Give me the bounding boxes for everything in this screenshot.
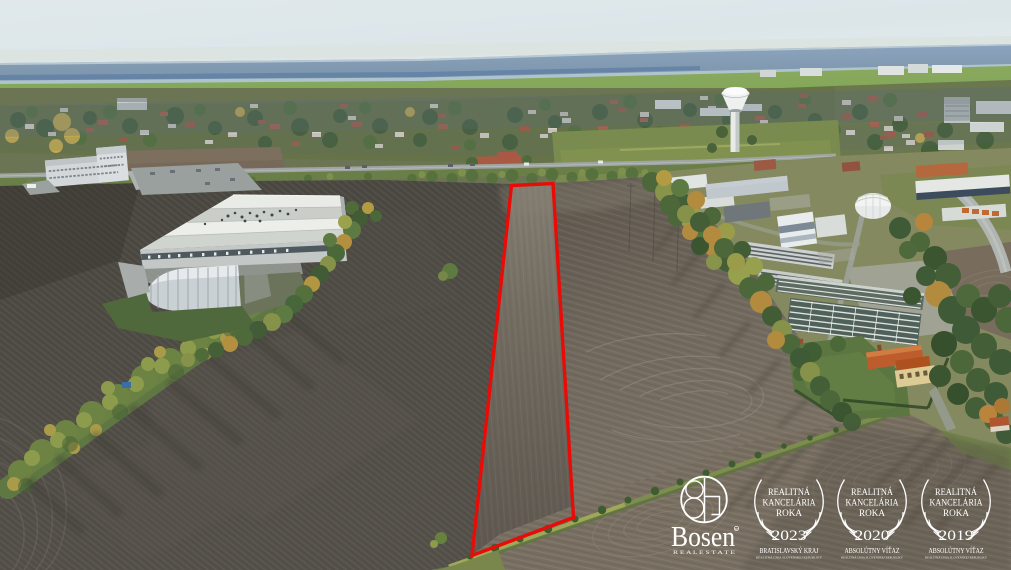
- svg-text:R: R: [735, 527, 738, 532]
- svg-text:R E A L E S T A T E: R E A L E S T A T E: [673, 550, 736, 556]
- svg-text:ABSOLÚTNY VÍŤAZ: ABSOLÚTNY VÍŤAZ: [845, 547, 900, 555]
- svg-text:REALITNÁ ÚNIA SLOVENSKEJ REPUB: REALITNÁ ÚNIA SLOVENSKEJ REPUBLIKY: [756, 555, 823, 560]
- svg-text:Bosen: Bosen: [671, 522, 735, 553]
- svg-text:2020: 2020: [855, 528, 890, 544]
- svg-text:KANCELÁRIA: KANCELÁRIA: [930, 497, 983, 509]
- svg-text:2019: 2019: [939, 528, 974, 544]
- svg-text:ROKA: ROKA: [943, 508, 969, 519]
- svg-text:ROKA: ROKA: [859, 508, 885, 519]
- svg-text:ROKA: ROKA: [776, 508, 802, 519]
- svg-text:ABSOLÚTNY VÍŤAZ: ABSOLÚTNY VÍŤAZ: [929, 547, 984, 555]
- svg-text:KANCELÁRIA: KANCELÁRIA: [846, 497, 899, 509]
- svg-text:KANCELÁRIA: KANCELÁRIA: [763, 497, 816, 509]
- svg-text:REALITNÁ: REALITNÁ: [851, 486, 893, 498]
- svg-text:REALITNÁ ÚNIA SLOVENSKEJ REPUB: REALITNÁ ÚNIA SLOVENSKEJ REPUBLIKY: [925, 555, 988, 560]
- svg-text:REALITNÁ: REALITNÁ: [935, 486, 977, 498]
- svg-text:2023: 2023: [772, 528, 807, 544]
- svg-text:REALITNÁ: REALITNÁ: [768, 486, 810, 498]
- svg-text:REALITNÁ ÚNIA SLOVENSKEJ REPUB: REALITNÁ ÚNIA SLOVENSKEJ REPUBLIKY: [841, 555, 904, 560]
- svg-text:BRATISLAVSKÝ KRAJ: BRATISLAVSKÝ KRAJ: [760, 547, 819, 555]
